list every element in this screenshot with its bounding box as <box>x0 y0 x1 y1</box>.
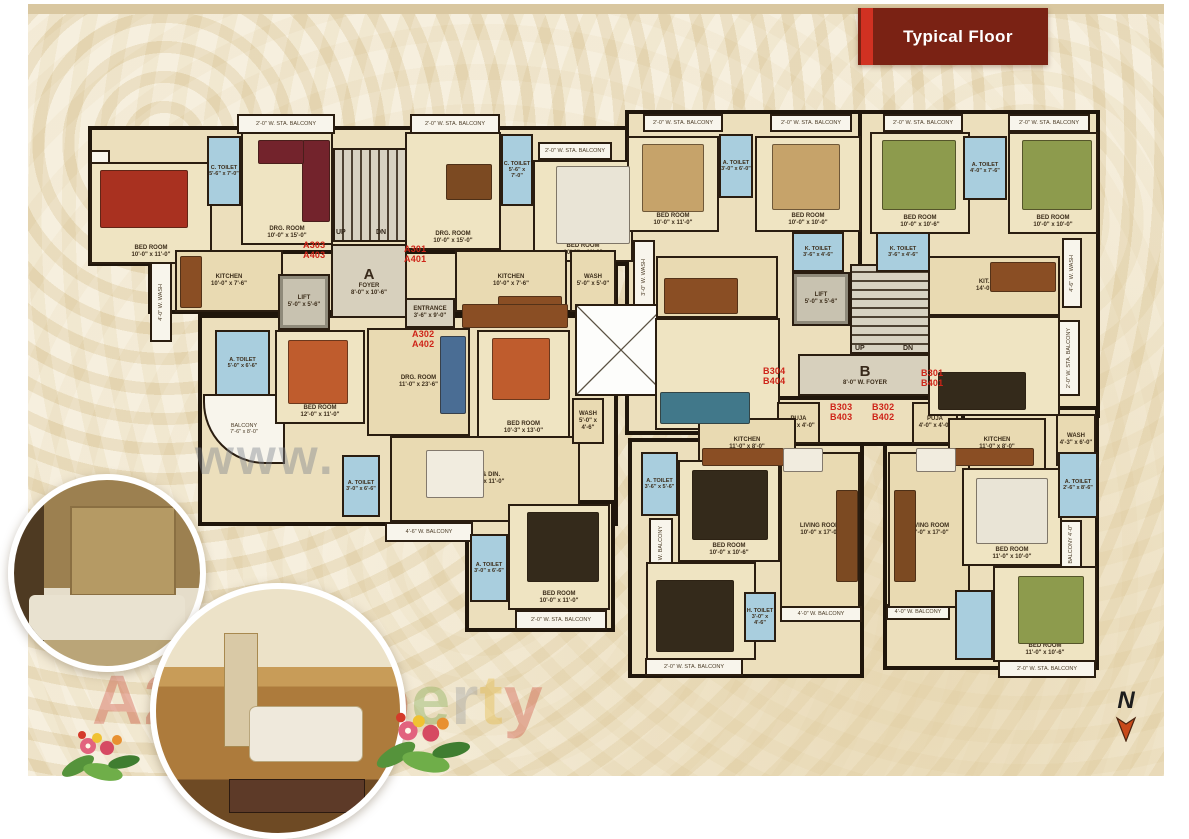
counter-a302 <box>462 304 568 328</box>
balcony-a302-3-label: 2'-0" W. STA. BALCONY <box>531 617 591 623</box>
balcony-a301-2-label: 2'-0" W. STA. BALCONY <box>545 148 605 154</box>
kitchen-a301-label: KITCHEN10'-0" x 7'-6" <box>493 274 529 288</box>
entrance-a302-label: ENTRANCE3'-6" x 9'-0" <box>413 306 446 320</box>
foyer-a: AFOYER8'-0" x 10'-6" <box>331 244 407 318</box>
bedroom-a302-3-label: BED ROOM10'-0" x 11'-0" <box>540 591 579 605</box>
balcony-a302-bottom: 4'-6" W. BALCONY <box>385 522 473 542</box>
bed-b304 <box>642 144 704 212</box>
kitchen-a303-label: KITCHEN10'-0" x 7'-6" <box>211 274 247 288</box>
balcony-b301-top2: 2'-0" W. STA. BALCONY <box>1008 114 1090 132</box>
lift-a-label: LIFT5'-0" x 5'-6" <box>288 295 321 309</box>
unit-label-b303: B303B403 <box>830 403 852 422</box>
toilet-k-b301: K. TOILET3'-6" x 4'-6" <box>876 232 930 272</box>
counter-b302 <box>952 448 1034 466</box>
balcony-b302-sta-label: 2'-0" W. STA. BALCONY <box>1017 666 1077 672</box>
drg-room-a301-label: DRG. ROOM10'-0" x 15'-0" <box>433 231 472 245</box>
toilet-c-a301-label: C. TOILET5'-6" x 7'-0" <box>503 161 531 179</box>
balcony-b304-top-label: 2'-0" W. STA. BALCONY <box>653 120 713 126</box>
bed-photo-detail <box>29 595 185 640</box>
bedroom-b301-1-label: BED ROOM10'-0" x 10'-6" <box>900 215 939 229</box>
balcony-b304-top: 2'-0" W. STA. BALCONY <box>643 114 723 132</box>
bed-a301 <box>556 166 630 244</box>
toilet-a-b304: A. TOILET3'-0" x 6'-0" <box>719 134 753 198</box>
wash-a302: WASH5'-0" x 4'-6" <box>572 398 604 444</box>
stair-a <box>333 148 407 242</box>
void-duct <box>575 304 667 396</box>
entrance-a302: ENTRANCE3'-6" x 9'-0" <box>405 298 455 328</box>
unit-label-a302: A302A402 <box>412 330 434 349</box>
living-room-interior-photo <box>150 583 406 839</box>
lift-b: LIFT5'-0" x 5'-6" <box>792 272 850 326</box>
balcony-a301-2: 2'-0" W. STA. BALCONY <box>538 142 612 160</box>
foyer-a-label: FOYER8'-0" x 10'-6" <box>351 283 387 297</box>
flower-decoration <box>372 682 480 782</box>
sofa-a303-1 <box>302 140 330 222</box>
balcony-b301-top2-label: 2'-0" W. STA. BALCONY <box>1019 120 1079 126</box>
balcony-a303-top: 2'-0" W. STA. BALCONY <box>237 114 335 134</box>
counter-b303 <box>702 448 784 466</box>
foyer-b: B8'-0" W. FOYER <box>798 354 932 396</box>
toilet-a-a302-label: A. TOILET5'-0" x 6'-6" <box>228 357 258 369</box>
bed-b301-2 <box>1022 140 1092 210</box>
toilet-c-a301: C. TOILET5'-6" x 7'-0" <box>501 134 533 206</box>
toilet-a-b303-label: A. TOILET3'-6" x 5'-6" <box>645 478 675 490</box>
page-title: Typical Floor <box>893 27 1013 47</box>
balcony-b302-right: BALCONY 4'-0" <box>1060 520 1082 568</box>
url-watermark: www. <box>195 428 336 486</box>
north-compass: N <box>1106 690 1146 747</box>
balcony-a302-3: 2'-0" W. STA. BALCONY <box>515 610 607 630</box>
carpet-detail <box>229 779 365 813</box>
bed-b304-2 <box>772 144 840 210</box>
toilet-k-b301-label: K. TOILET3'-6" x 4'-6" <box>888 246 918 258</box>
toilet-a-a302-din-label: A. TOILET3'-0" x 6'-6" <box>346 480 376 492</box>
toilet-k-b304: K. TOILET3'-6" x 4'-6" <box>792 232 844 272</box>
toilet-a-b301-label: A. TOILET4'-0" x 7'-6" <box>970 162 1000 174</box>
table-a301 <box>446 164 492 200</box>
drg-room-a302-label: DRG. ROOM11'-0" x 23'-6" <box>399 375 438 389</box>
balcony-b302-sta: 2'-0" W. STA. BALCONY <box>998 660 1096 678</box>
balcony-b303-east: 4'-0" W. BALCONY <box>780 606 862 622</box>
north-arrow-icon <box>1114 712 1138 742</box>
title-box: Typical Floor <box>858 8 1048 65</box>
balcony-b304-top2: 2'-0" W. STA. BALCONY <box>770 114 852 132</box>
toilet-a-a302-3: A. TOILET3'-0" x 6'-6" <box>470 534 508 602</box>
balcony-b303-bottom: 2'-0" W. STA. BALCONY <box>645 658 743 676</box>
sofa-b303 <box>836 490 858 582</box>
stair-direction-label: UP <box>336 229 346 236</box>
bedroom-a302-1-label: BED ROOM12'-0" x 11'-0" <box>301 405 340 419</box>
bed-a302-2 <box>492 338 550 400</box>
balcony-b302-bottom-label: 4'-0" W. BALCONY <box>895 609 942 615</box>
toilet-c-a303: C. TOILET5'-6" x 7'-0" <box>207 136 241 206</box>
toilet-a-b304-label: A. TOILET3'-0" x 6'-0" <box>721 160 751 172</box>
bedroom-b301-2-label: BED ROOM10'-0" x 10'-0" <box>1033 215 1072 229</box>
table-b302 <box>916 448 956 472</box>
bed-a303 <box>100 170 188 228</box>
sofa-a302 <box>440 336 466 414</box>
sofa-b302 <box>894 490 916 582</box>
bedroom-a303-label: BED ROOM10'-0" x 11'-0" <box>132 245 171 259</box>
unit-label-b302: B302B402 <box>872 403 894 422</box>
counter-b301 <box>990 262 1056 292</box>
wash-b301: 4'-6" W. WASH <box>1062 238 1082 308</box>
wash-a301-label: WASH5'-0" x 5'-0" <box>577 274 610 288</box>
balcony-b301-top1: 2'-0" W. STA. BALCONY <box>883 114 963 132</box>
foyer-a-letter: A <box>364 266 375 283</box>
brand-watermark-letter: t <box>479 661 503 739</box>
balcony-a302-bottom-label: 4'-6" W. BALCONY <box>406 529 453 535</box>
wash-a303-label: 4'-0" W. WASH <box>158 284 164 321</box>
toilet-a-b301: A. TOILET4'-0" x 7'-6" <box>963 136 1007 200</box>
bedroom-a302-2-label: BED ROOM10'-3" x 13'-0" <box>504 421 543 435</box>
stair-b <box>850 264 932 354</box>
wardrobe-panel <box>70 506 176 596</box>
bedroom-b304-2-label: BED ROOM10'-0" x 10'-0" <box>788 213 827 227</box>
unit-label-a301: A301A401 <box>404 245 426 264</box>
foyer-b-letter: B <box>860 363 871 380</box>
sofa-a303-2 <box>258 140 304 164</box>
bedroom-b303-1-label: BED ROOM10'-0" x 10'-6" <box>709 543 748 557</box>
toilet-a-a302-din: A. TOILET3'-0" x 6'-6" <box>342 455 380 517</box>
wash-b302-label: WASH4'-3" x 6'-0" <box>1060 433 1093 447</box>
toilet-a-a302-3-label: A. TOILET3'-0" x 6'-6" <box>474 562 504 574</box>
balcony-b301-right-label: 2'-0" W. STA. BALCONY <box>1066 328 1072 388</box>
wash-a302-label: WASH5'-0" x 4'-6" <box>574 411 602 432</box>
bed-b302-1 <box>976 478 1048 544</box>
balcony-b304-top2-label: 2'-0" W. STA. BALCONY <box>781 120 841 126</box>
balcony-a301-top: 2'-0" W. STA. BALCONY <box>410 114 500 134</box>
sofa-b304 <box>660 392 750 424</box>
sofa-detail <box>249 706 363 762</box>
lift-a: LIFT5'-0" x 5'-6" <box>278 274 330 330</box>
sofa-b301 <box>938 372 1026 410</box>
wash-b304-label: 3'-0" W. WASH <box>641 259 647 296</box>
unit-label-b301: B301B401 <box>921 369 943 388</box>
foyer-b-label: 8'-0" W. FOYER <box>843 380 887 387</box>
stair-direction-label: UP <box>855 345 865 352</box>
lift-b-label: LIFT5'-0" x 5'-6" <box>805 292 838 306</box>
bed-b301-1 <box>882 140 956 210</box>
puja-b302-label: PUJA4'-0" x 4'-0" <box>919 416 952 430</box>
toilet-k-b302 <box>955 590 993 660</box>
balcony-a303-top-label: 2'-0" W. STA. BALCONY <box>256 121 316 127</box>
bed-a302-1 <box>288 340 348 404</box>
bedroom-b304-label: BED ROOM10'-0" x 11'-0" <box>654 213 693 227</box>
balcony-b301-top1-label: 2'-0" W. STA. BALCONY <box>893 120 953 126</box>
wash-a301: WASH5'-0" x 5'-0" <box>570 250 616 312</box>
bed-a302-3 <box>527 512 599 582</box>
living-b303-label: LIVING ROOM10'-0" x 17'-0" <box>800 523 840 537</box>
wash-a303: 4'-0" W. WASH <box>150 262 172 342</box>
toilet-a-b303: A. TOILET3'-6" x 5'-6" <box>641 452 678 516</box>
bedroom-b302-2-label: BED ROOM11'-0" x 10'-6" <box>1026 643 1065 657</box>
balcony-a301-top-label: 2'-0" W. STA. BALCONY <box>425 121 485 127</box>
table-a302 <box>426 450 484 498</box>
toilet-a-a302: A. TOILET5'-0" x 6'-6" <box>215 330 270 396</box>
north-label: N <box>1106 690 1146 712</box>
wash-b304: 3'-0" W. WASH <box>633 240 655 314</box>
bed-b303-1 <box>692 470 768 540</box>
balcony-b301-right: 2'-0" W. STA. BALCONY <box>1058 320 1080 396</box>
flower-decoration <box>58 706 148 788</box>
stair-direction-label: DN <box>376 229 386 236</box>
toilet-a-b302-label: A. TOILET2'-6" x 8'-6" <box>1063 479 1093 491</box>
toilet-a-b302: A. TOILET2'-6" x 8'-6" <box>1058 452 1098 518</box>
unit-label-b304: B304B404 <box>763 367 785 386</box>
bedroom-b302-1-label: BED ROOM11'-0" x 10'-0" <box>993 547 1032 561</box>
toilet-h-b303: H. TOILET3'-0" x 4'-6" <box>744 592 776 642</box>
toilet-h-b303-label: H. TOILET3'-0" x 4'-6" <box>746 608 774 626</box>
brand-watermark-letter: y <box>504 661 544 739</box>
bed-b303-2 <box>656 580 734 652</box>
bed-b302-2 <box>1018 576 1084 644</box>
counter-b304 <box>664 278 738 314</box>
balcony-b303-bottom-label: 2'-0" W. STA. BALCONY <box>664 664 724 670</box>
balcony-b303-east-label: 4'-0" W. BALCONY <box>798 611 845 617</box>
toilet-k-b304-label: K. TOILET3'-6" x 4'-6" <box>803 246 833 258</box>
table-b303 <box>783 448 823 472</box>
wash-b301-label: 4'-6" W. WASH <box>1069 255 1075 292</box>
counter-a303 <box>180 256 202 308</box>
toilet-c-a303-label: C. TOILET5'-6" x 7'-0" <box>209 165 239 177</box>
drg-room-a303-label: DRG. ROOM10'-0" x 15'-0" <box>267 226 306 240</box>
balcony-b302-right-label: BALCONY 4'-0" <box>1068 525 1074 564</box>
unit-label-a303: A303A403 <box>303 241 325 260</box>
stair-direction-label: DN <box>903 345 913 352</box>
